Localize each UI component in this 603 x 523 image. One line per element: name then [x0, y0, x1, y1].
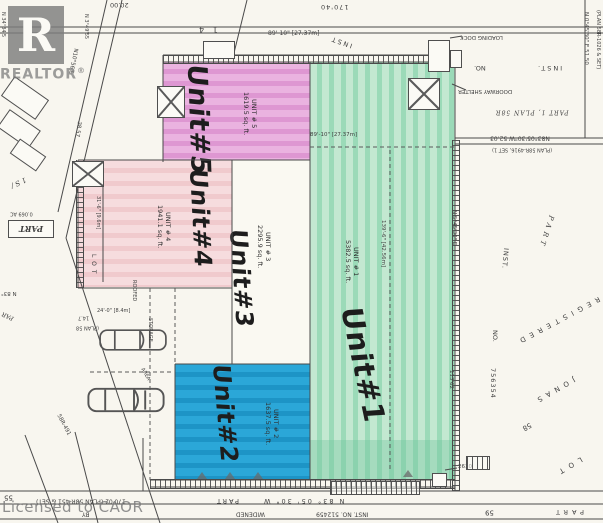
- storage-label: STORAGE: [147, 318, 153, 342]
- registered-mark: ®: [77, 66, 86, 75]
- realtor-wordmark-text: REALTOR: [0, 67, 77, 83]
- part-box-label: PART: [19, 224, 43, 234]
- inst-no-bottom: INST. NO. 512459: [316, 510, 369, 517]
- entry-vestibule: [203, 41, 235, 59]
- parked-car-2: [86, 384, 166, 416]
- survey-plan: Unit#5 Unit#4 Unit#3 Unit#2 Unit#1 UNIT …: [0, 0, 603, 523]
- unit1-depth-dimension: 139'-6" [42.56m]: [380, 220, 386, 267]
- vent-marker: [197, 472, 207, 479]
- part-road: PART: [215, 497, 239, 504]
- bottom-bearing: N 83° 05' 30" W: [262, 497, 344, 504]
- doorway-shelter-structure: [450, 50, 462, 68]
- stairs-strip-small: [466, 456, 490, 470]
- part-box: PART: [8, 220, 54, 238]
- stairs-strip: [330, 481, 420, 495]
- survey-linework: [0, 0, 603, 523]
- loading-dock-structure: [428, 40, 450, 72]
- realtor-wordmark: REALTOR®: [0, 66, 86, 83]
- vent-marker: [403, 470, 413, 477]
- landing-box: [432, 473, 447, 487]
- roofed-label: ROOFED: [131, 280, 137, 301]
- doorway-x-box-unit5: [157, 86, 185, 118]
- realtor-logo: R: [8, 6, 64, 64]
- mid-width-dimension: 89'-10" [27.37m]: [310, 132, 357, 138]
- doorway-x-box-unit4: [72, 161, 104, 187]
- doorway-x-box-right: [408, 78, 440, 110]
- vent-marker: [253, 472, 263, 479]
- vent-marker: [225, 472, 235, 479]
- license-watermark: Licensed to CAOR: [2, 498, 143, 516]
- realtor-logo-letter: R: [17, 12, 55, 58]
- widened-label: WIDENED: [236, 510, 265, 517]
- unit4-depth-dimension: 31'-6" [9.6m]: [95, 196, 101, 229]
- parked-car-1: [98, 326, 168, 354]
